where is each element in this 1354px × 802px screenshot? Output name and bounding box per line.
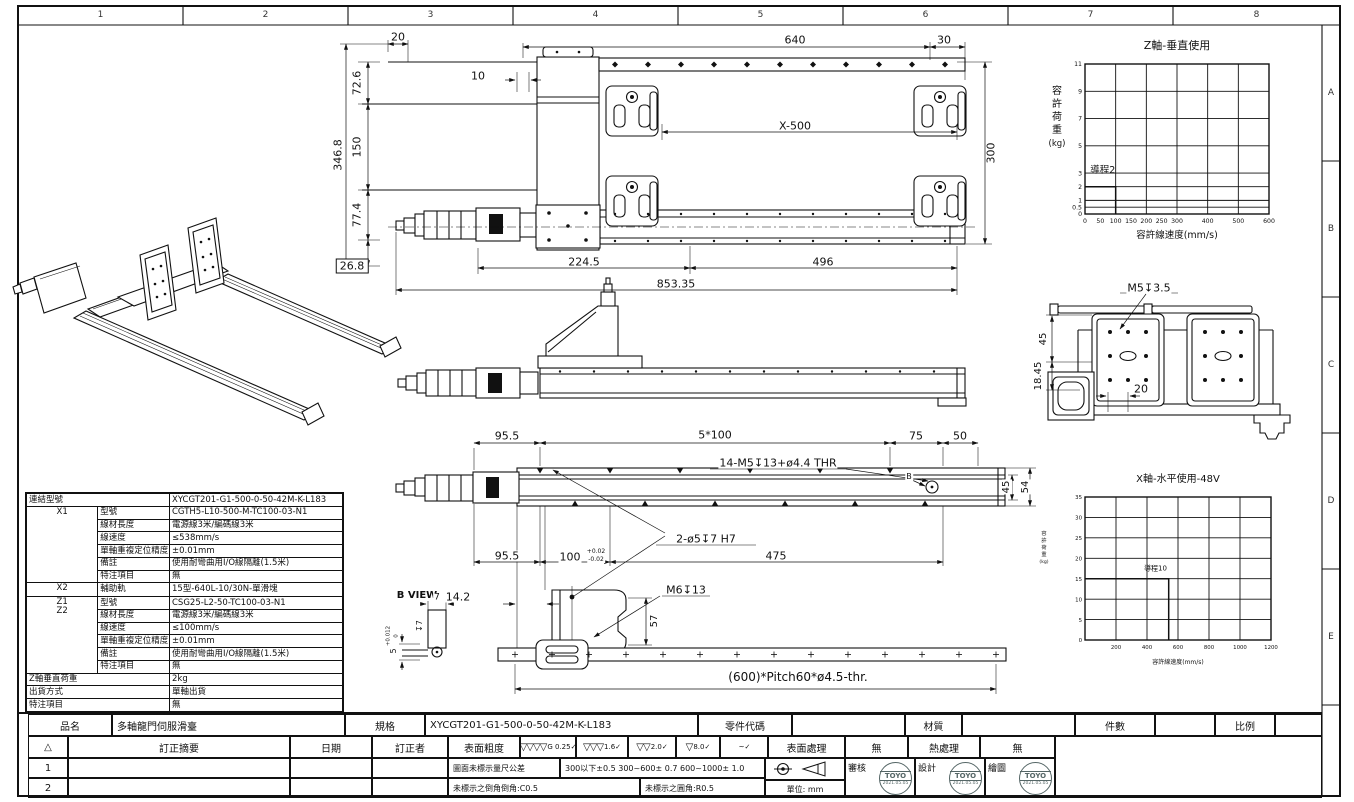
dim-label: 853.35 [656, 279, 697, 290]
spec-value: CSG25-L2-50-TC100-03-N1 [170, 597, 344, 610]
review-stamp-cell: 審核 TOYO2021.05.05 [845, 758, 915, 798]
spec-value: 使用耐彎曲用I/O線隔離(1.5米) [170, 557, 344, 570]
dim-label: 496 [812, 257, 835, 268]
dim-label: 20 [390, 32, 406, 43]
grid-column-label: 3 [428, 10, 434, 20]
dim-label: X-500 [778, 121, 812, 132]
y-tick-label: 0 [1079, 638, 1083, 644]
revision-date-1 [290, 758, 372, 778]
spec-row: X1型號CGTH5-L10-500-M-TC100-03-N1 [26, 506, 343, 519]
dim-label: 475 [765, 551, 788, 562]
dim-label: 0 [394, 633, 400, 639]
y-axis-label-char: 重 [1041, 550, 1046, 558]
y-tick-label: 9 [1078, 88, 1082, 95]
dim-label: 2-ø5↧7 H7 [675, 534, 737, 545]
x-tick-label: 400 [1142, 645, 1153, 651]
spec-value: 15型-640L-10/30N-單滑塊 [170, 583, 344, 597]
dim-label: B [905, 473, 913, 481]
tolerance-note-label: 圖面未標示量尺公差 [448, 758, 560, 778]
series-line [1085, 579, 1169, 640]
middle-elevation-view [398, 278, 966, 406]
y-tick-label: 25 [1075, 536, 1082, 542]
design-stamp: TOYO2021.05.05 [949, 762, 982, 795]
dim-label: 346.8 [333, 138, 344, 172]
dim-label: ↧7 [416, 619, 424, 633]
x-tick-label: 200 [1111, 645, 1122, 651]
grid-row-label: C [1328, 360, 1334, 370]
spec-row: Z1 Z2型號CSG25-L2-50-TC100-03-N1 [26, 597, 343, 610]
x-tick-label: 200 [1140, 218, 1152, 225]
x-tick-label: 100 [1110, 218, 1122, 225]
material-label: 材質 [905, 714, 962, 736]
heat-treatment-label: 熱處理 [908, 736, 980, 758]
unit-label: 單位: mm [765, 780, 845, 798]
tolerance-note-value: 300以下±0.5 300~600± 0.7 600~1000± 1.0 [560, 758, 765, 778]
y-tick-label: 10 [1075, 597, 1082, 603]
dim-label: 5*100 [697, 430, 733, 441]
x-tick-label: 600 [1173, 645, 1184, 651]
y-axis-label-char: 容 [1052, 84, 1062, 97]
heat-treatment-value: 無 [980, 736, 1055, 758]
projection-symbol [765, 758, 845, 780]
spec-label: 型號 [98, 597, 170, 610]
material-value [962, 714, 1075, 736]
chart-title: X軸-水平使用-48V [1136, 472, 1220, 485]
x-tick-label: 800 [1204, 645, 1215, 651]
scale-value [1275, 714, 1322, 736]
scale-label: 比例 [1215, 714, 1275, 736]
surface-treatment-value: 無 [845, 736, 908, 758]
revision-mark: △ [28, 736, 68, 758]
dim-label: 224.5 [567, 257, 601, 268]
y-axis-label-char: 許 [1052, 97, 1062, 110]
y-tick-label: 20 [1075, 556, 1082, 562]
chart-title: Z軸-垂直使用 [1144, 38, 1211, 52]
x-tick-label: 1200 [1264, 645, 1278, 651]
top-view [362, 47, 978, 250]
spec-value: ≤538mm/s [170, 532, 344, 545]
pin-name-value: 多軸龍門伺服滑臺 [112, 714, 345, 736]
spec-label: 特注項目 [98, 660, 170, 673]
notes-blank-cell [1055, 736, 1322, 798]
date-label: 日期 [290, 736, 372, 758]
dim-label: 640 [784, 35, 807, 46]
spec-value: XYCGT201-G1-500-0-50-42M-K-L183 [425, 714, 698, 736]
design-stamp-cell: 設計 TOYO2021.05.05 [915, 758, 985, 798]
spec-row: 出貨方式單軸出貨 [26, 686, 343, 699]
x-tick-label: 50 [1096, 218, 1104, 225]
spec-value: 無 [170, 660, 344, 673]
roughness-symbol: ▽8.0✓ [676, 736, 720, 758]
y-tick-label: 15 [1075, 577, 1082, 583]
x-tick-label: 150 [1125, 218, 1137, 225]
x-axis-label: 容許線速度(mm/s) [1152, 658, 1204, 666]
roughness-symbols: ▽▽▽▽G 0.25✓▽▽▽1.6✓▽▽2.0✓▽8.0✓~✓ [520, 736, 768, 758]
dim-label: 50 [952, 431, 968, 442]
draft-stamp: TOYO2021.05.05 [1019, 762, 1052, 795]
spec-value: 電源線3米/編碼線3米 [170, 519, 344, 532]
dim-label: 14-M5↧13+ø4.4 THR [718, 458, 837, 469]
spec-label: 單軸重複定位精度 [98, 635, 170, 648]
spec-label: 線材長度 [98, 519, 170, 532]
y-tick-label: 30 [1075, 516, 1082, 522]
spec-value: 電源線3米/編碼線3米 [170, 609, 344, 622]
spec-label: 備註 [98, 557, 170, 570]
revision-summary-2 [68, 778, 290, 798]
x-tick-label: 1000 [1233, 645, 1247, 651]
spec-label: Z軸垂直荷重 [26, 673, 170, 686]
spec-label: 出貨方式 [26, 686, 170, 699]
spec-value: 使用耐彎曲用I/O線隔離(1.5米) [170, 648, 344, 661]
roughness-symbol: ▽▽▽▽G 0.25✓ [520, 736, 576, 758]
dim-label: 72.6 [352, 70, 363, 97]
dim-label: (600)*Pitch60*ø4.5-thr. [727, 671, 868, 683]
spec-group: X1 [26, 506, 98, 583]
x-tick-label: 400 [1202, 218, 1214, 225]
dim-label: 100 [559, 552, 582, 563]
y-tick-label: 5 [1078, 143, 1082, 150]
dim-label: 10 [470, 71, 486, 82]
revision-by-2 [372, 778, 448, 798]
spec-label: 單軸重複定位精度 [98, 545, 170, 558]
part-code-label: 零件代碼 [698, 714, 792, 736]
y-axis-unit: (kg) [1039, 559, 1048, 565]
spec-value: 無 [170, 699, 344, 712]
right-section-view [1048, 304, 1290, 439]
grid-column-label: 8 [1254, 10, 1260, 20]
y-tick-label: 0 [1078, 211, 1082, 218]
z-axis-load-chart: 05010015020025030040050060000.512357911Z… [1035, 28, 1340, 268]
roughness-symbol: ~✓ [720, 736, 768, 758]
dim-label: M6↧13 [665, 585, 707, 596]
isometric-view [13, 218, 401, 425]
dim-label: 20 [1133, 384, 1149, 395]
grid-column-label: 5 [758, 10, 764, 20]
dim-label: -0.02 [587, 557, 605, 563]
dim-label: 14.2 [445, 592, 472, 603]
x-tick-label: 300 [1171, 218, 1183, 225]
y-tick-label: 7 [1078, 116, 1082, 123]
fillet-note: 未標示之圓角:R0.5 [640, 778, 765, 798]
roughness-symbol: ▽▽2.0✓ [628, 736, 676, 758]
y-axis-unit: (kg) [1049, 139, 1066, 149]
y-axis-label-char: 荷 [1052, 111, 1062, 123]
spec-table: 連結型號XYCGT201-G1-500-0-50-42M-K-L183X1型號C… [25, 492, 344, 713]
dim-label: +0.012 [386, 625, 392, 647]
spec-row: X2輔助軌15型-640L-10/30N-單滑塊 [26, 583, 343, 597]
grid-column-label: 6 [923, 10, 929, 20]
x-tick-label: 600 [1263, 218, 1275, 225]
grid-column-label: 4 [593, 10, 599, 20]
y-axis-label-char: 容 [1041, 529, 1046, 537]
dim-label: 77.4 [352, 202, 363, 229]
y-tick-label: 5 [1079, 618, 1082, 624]
drawing-sheet: { "border": { "columns": ["1","2","3","4… [0, 0, 1354, 802]
spec-value: 無 [170, 570, 344, 583]
roughness-label: 表面粗度 [448, 736, 520, 758]
revision-summary-label: 訂正摘要 [68, 736, 290, 758]
part-code-value [792, 714, 905, 736]
spec-value: CGTH5-L10-500-M-TC100-03-N1 [170, 506, 344, 519]
spec-value: XYCGT201-G1-500-0-50-42M-K-L183 [170, 493, 344, 506]
y-tick-label: 35 [1075, 495, 1082, 501]
y-tick-label: 11 [1074, 61, 1082, 68]
grid-column-label: 1 [98, 10, 104, 20]
revision-date-2 [290, 778, 372, 798]
spec-label: 特注項目 [26, 699, 170, 712]
qty-label: 件數 [1075, 714, 1155, 736]
roughness-symbol: ▽▽▽1.6✓ [576, 736, 628, 758]
x-axis-load-chart: 2004006008001000120005101520253035X軸-水平使… [1022, 455, 1340, 697]
qty-value [1155, 714, 1215, 736]
spec-row: 特注項目無 [26, 699, 343, 712]
dim-label: 5 [390, 647, 398, 654]
design-role: 設計 [918, 761, 936, 774]
revision-summary-1 [68, 758, 290, 778]
spec-label: 型號 [98, 506, 170, 519]
revision-row-2: 2 [28, 778, 68, 798]
spec-label: 線速度 [98, 532, 170, 545]
spec-value: ±0.01mm [170, 545, 344, 558]
dim-label: 95.5 [494, 551, 521, 562]
y-tick-label: 1 [1078, 198, 1082, 205]
revision-by-1 [372, 758, 448, 778]
revision-row-1: 1 [28, 758, 68, 778]
y-tick-label: 0.5 [1072, 204, 1082, 211]
grid-column-label: 2 [263, 10, 269, 20]
x-tick-label: 250 [1156, 218, 1168, 225]
dim-label: 75 [908, 431, 924, 442]
dim-label: 26.8 [336, 259, 369, 274]
spec-label: 備註 [98, 648, 170, 661]
x-tick-label: 500 [1232, 218, 1244, 225]
spec-value: ≤100mm/s [170, 622, 344, 635]
y-axis-label-char: 荷 [1041, 543, 1046, 551]
y-axis-label-char: 重 [1052, 123, 1062, 136]
dim-label: M5↧3.5 [1126, 283, 1171, 294]
review-role: 審核 [848, 761, 866, 774]
pin-name-label: 品名 [28, 714, 112, 736]
spec-group: X2 [26, 583, 98, 597]
title-block: 品名 多軸龍門伺服滑臺 規格 XYCGT201-G1-500-0-50-42M-… [18, 712, 1322, 796]
draft-stamp-cell: 繪圖 TOYO2021.05.05 [985, 758, 1055, 798]
review-stamp: TOYO2021.05.05 [879, 762, 912, 795]
spec-label: 輔助軌 [98, 583, 170, 597]
spec-value: 2kg [170, 673, 344, 686]
lower-side-view [396, 468, 1006, 669]
spec-value: ±0.01mm [170, 635, 344, 648]
spec-label: 特注項目 [98, 570, 170, 583]
dim-label: 95.5 [494, 431, 521, 442]
dim-label: 7 [433, 594, 441, 603]
dim-label: +0.02 [586, 549, 606, 555]
dim-label: 45 [1039, 332, 1049, 347]
spec-label: 連結型號 [26, 493, 170, 506]
dim-label: 45 [1002, 480, 1012, 495]
y-tick-label: 2 [1078, 184, 1082, 191]
chamfer-note: 未標示之倒角倒角:C0.5 [448, 778, 640, 798]
dim-label: 57 [650, 614, 660, 629]
y-axis-label-char: 許 [1041, 536, 1046, 544]
draft-role: 繪圖 [988, 761, 1006, 774]
spec-label: 線材長度 [98, 609, 170, 622]
series-label: 導程2 [1090, 164, 1115, 176]
x-axis-label: 容許線速度(mm/s) [1136, 229, 1218, 241]
grid-column-label: 7 [1088, 10, 1094, 20]
spec-row: Z軸垂直荷重2kg [26, 673, 343, 686]
dim-label: B VIEW [396, 591, 438, 601]
spec-label: 線速度 [98, 622, 170, 635]
spec-row: 連結型號XYCGT201-G1-500-0-50-42M-K-L183 [26, 493, 343, 506]
spec-value: 單軸出貨 [170, 686, 344, 699]
first-angle-projection-icon [767, 759, 843, 779]
dim-label: 150 [352, 136, 363, 159]
reviser-label: 訂正者 [372, 736, 448, 758]
surface-treatment-label: 表面處理 [768, 736, 845, 758]
spec-label: 規格 [345, 714, 425, 736]
spec-group: Z1 Z2 [26, 597, 98, 674]
dim-label: 30 [936, 35, 952, 46]
dim-label: 18.45 [1034, 361, 1044, 392]
y-tick-label: 3 [1078, 170, 1082, 177]
dim-label: 300 [986, 142, 997, 165]
series-label: 導程10 [1144, 564, 1167, 573]
x-tick-label: 0 [1083, 218, 1087, 225]
